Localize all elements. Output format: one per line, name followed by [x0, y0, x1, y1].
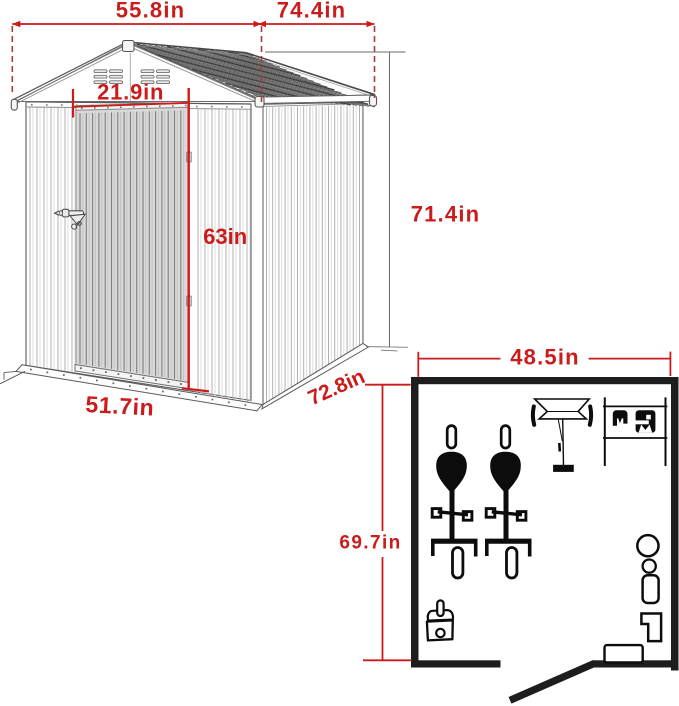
svg-text:74.4in: 74.4in [277, 0, 347, 23]
svg-text:71.4in: 71.4in [411, 202, 481, 227]
svg-text:69.7in: 69.7in [339, 532, 401, 553]
svg-text:48.5in: 48.5in [510, 344, 580, 369]
svg-text:21.9in: 21.9in [97, 79, 164, 104]
svg-text:63in: 63in [203, 224, 247, 249]
svg-text:55.8in: 55.8in [116, 0, 186, 23]
svg-text:51.7in: 51.7in [85, 391, 155, 421]
